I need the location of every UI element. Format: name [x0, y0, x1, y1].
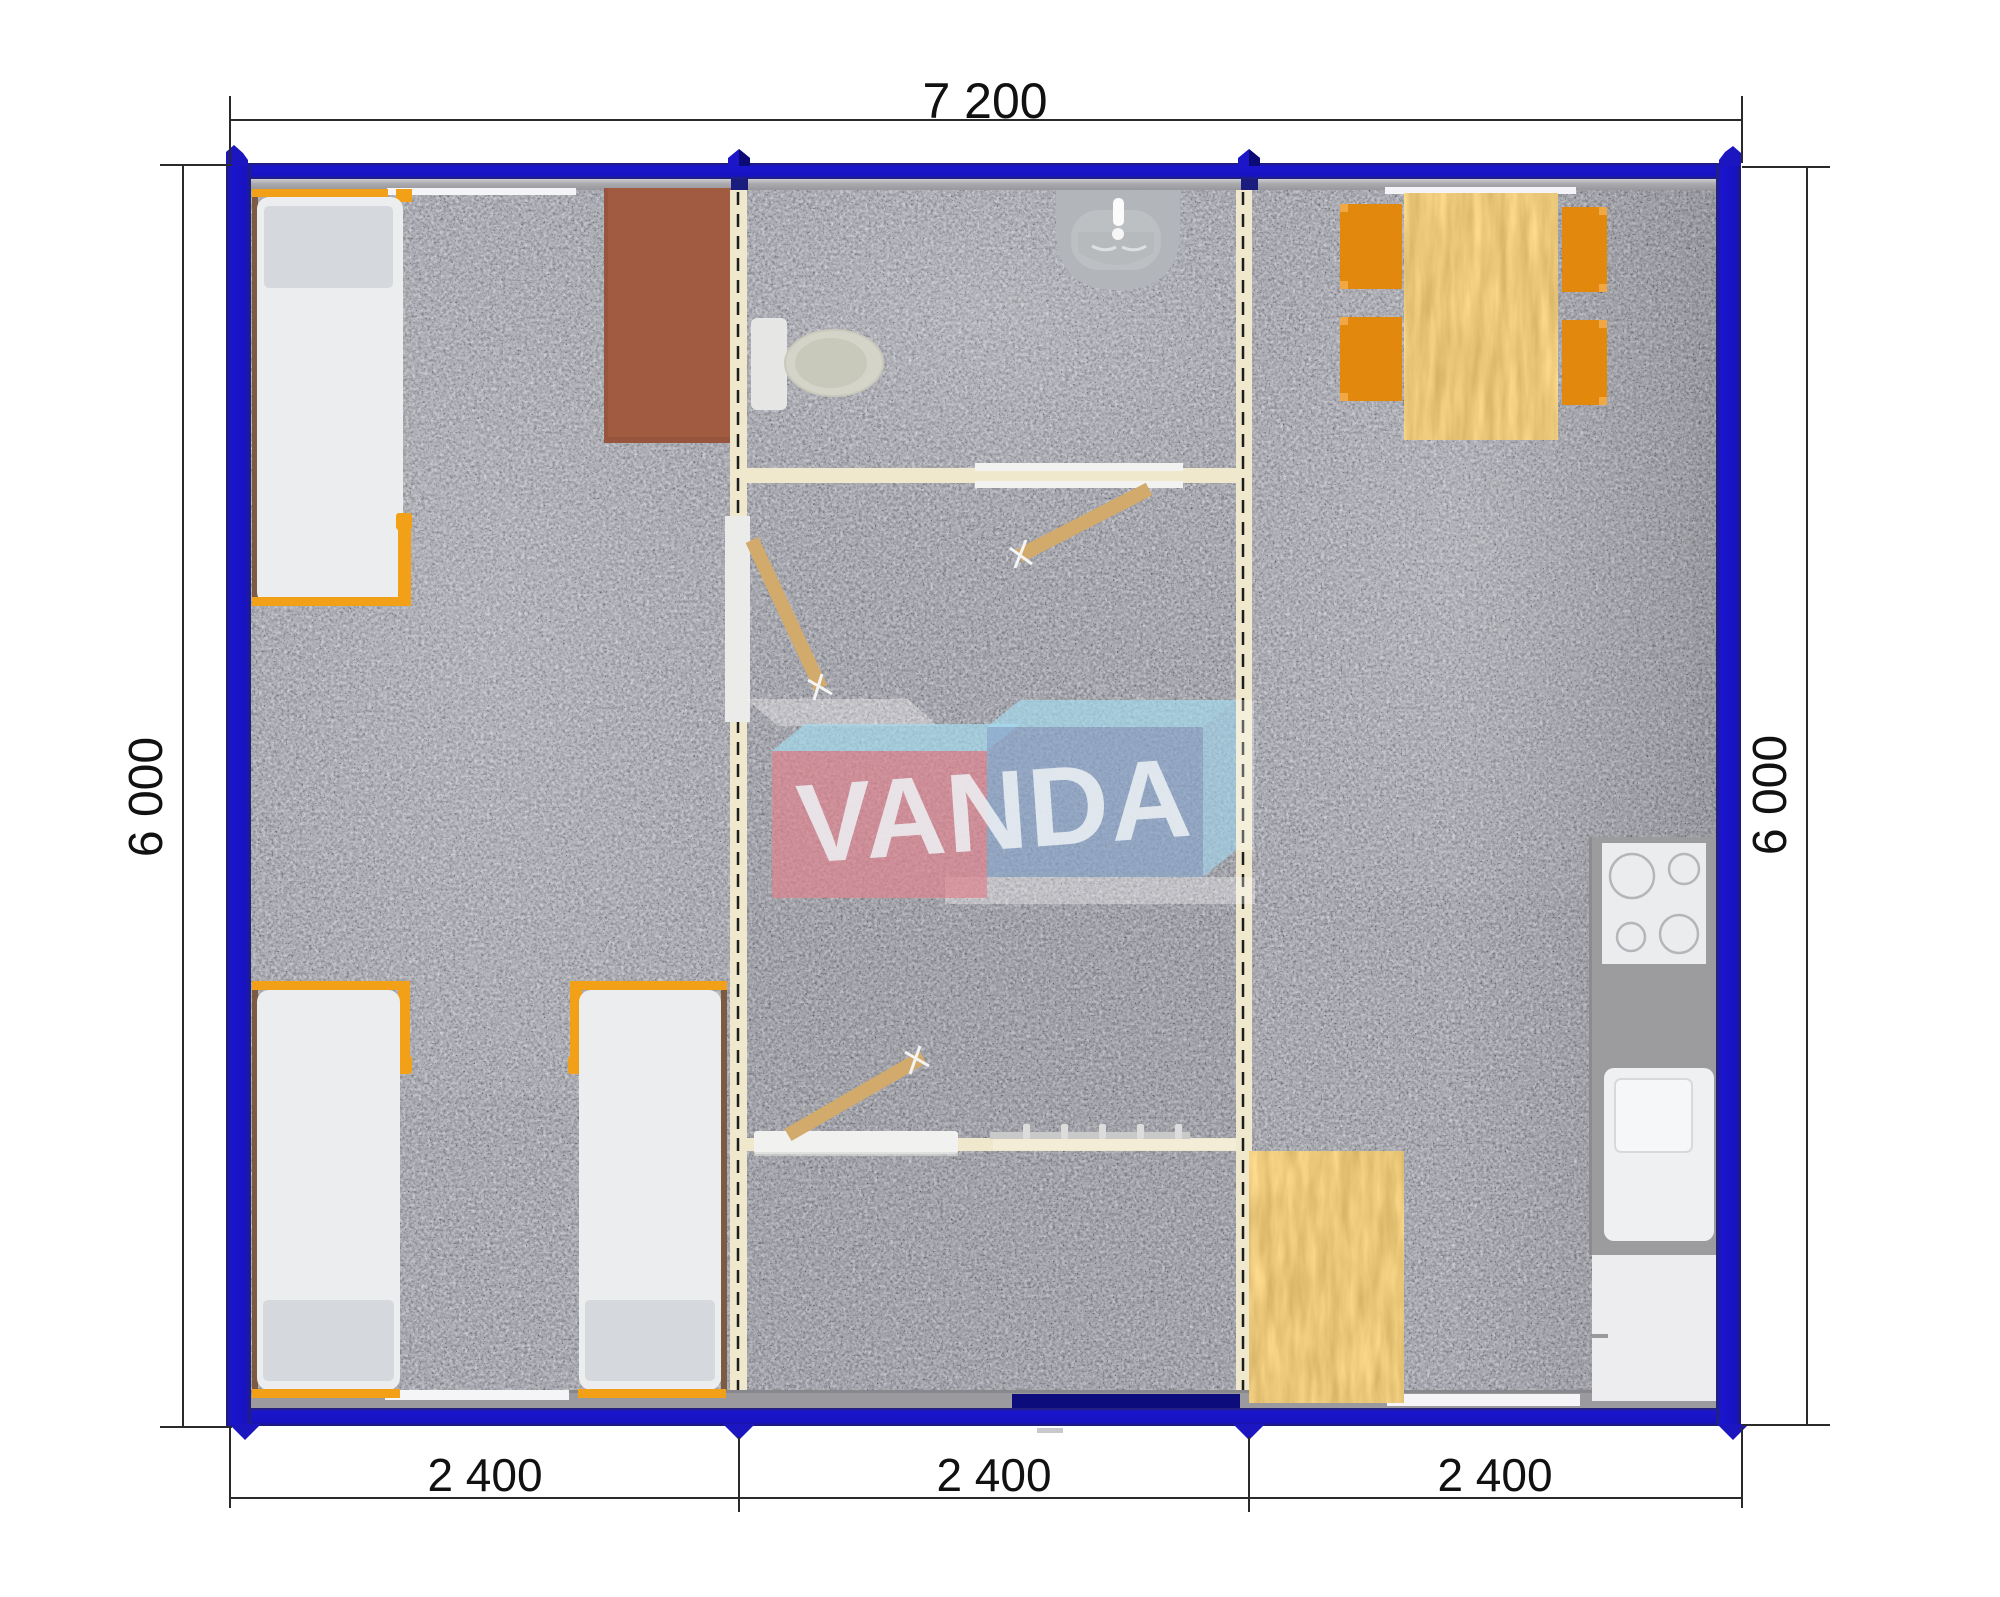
svg-text:2 400: 2 400 [427, 1449, 542, 1501]
svg-text:6 000: 6 000 [120, 737, 173, 857]
svg-text:2 400: 2 400 [1437, 1449, 1552, 1501]
svg-text:7 200: 7 200 [922, 73, 1047, 129]
svg-text:6 000: 6 000 [1744, 735, 1797, 855]
svg-text:2 400: 2 400 [936, 1449, 1051, 1501]
